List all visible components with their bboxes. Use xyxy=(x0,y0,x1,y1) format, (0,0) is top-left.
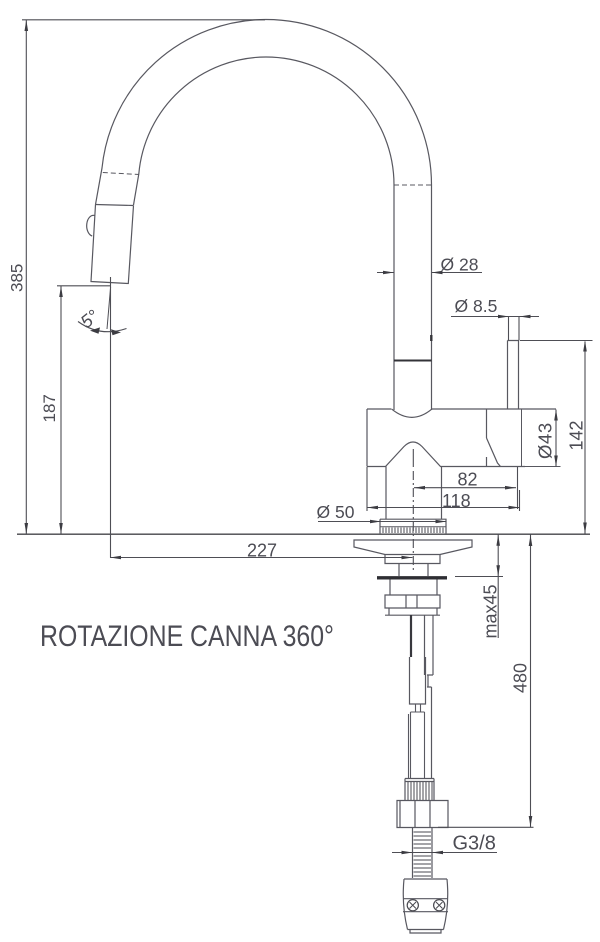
svg-text:187: 187 xyxy=(40,394,59,422)
svg-text:227: 227 xyxy=(247,541,277,561)
svg-text:480: 480 xyxy=(511,663,531,693)
svg-text:82: 82 xyxy=(458,470,478,490)
svg-text:118: 118 xyxy=(442,491,471,511)
svg-text:385: 385 xyxy=(8,264,27,292)
svg-text:ROTAZIONE CANNA 360°: ROTAZIONE CANNA 360° xyxy=(40,620,334,653)
svg-text:Ø 28: Ø 28 xyxy=(441,255,479,275)
svg-text:Ø 8.5: Ø 8.5 xyxy=(455,296,498,316)
svg-text:max45: max45 xyxy=(481,584,501,638)
svg-text:142: 142 xyxy=(567,420,587,450)
svg-text:Ø 50: Ø 50 xyxy=(317,502,355,522)
svg-text:Ø43: Ø43 xyxy=(535,422,556,459)
svg-text:G3/8: G3/8 xyxy=(453,833,496,855)
